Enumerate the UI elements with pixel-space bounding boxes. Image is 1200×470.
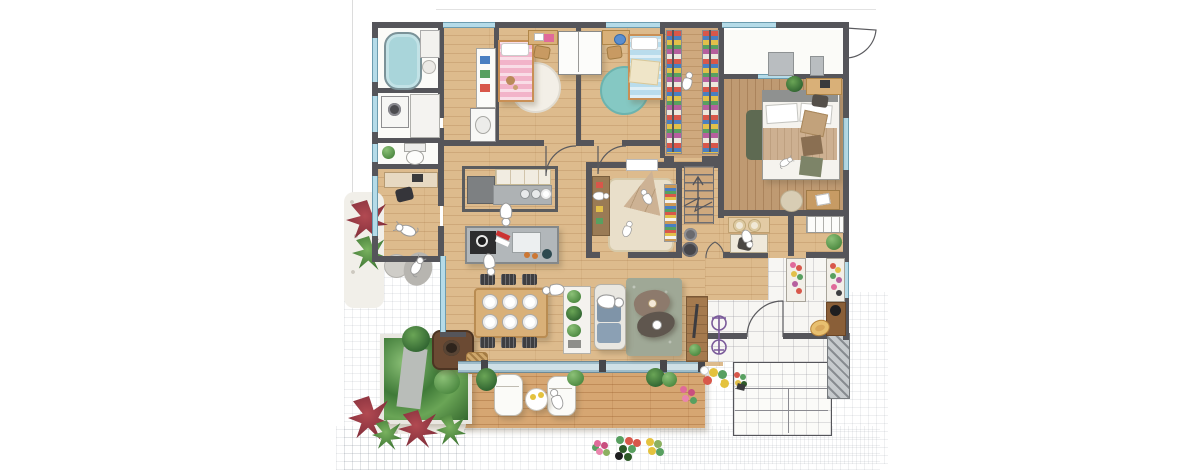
- dining-chair-3: [522, 274, 537, 285]
- deck-table: [525, 388, 548, 411]
- shoe-bench-1-flowers: [790, 262, 796, 268]
- playroom-counter-window: [626, 159, 658, 171]
- door-arc-balcony: [846, 28, 876, 58]
- washbasin-bowl: [475, 116, 491, 134]
- ottoman-2: [682, 242, 698, 257]
- master-desk-laptop: [820, 80, 830, 88]
- master-cushion-brown: [801, 135, 823, 157]
- master-pillow-1: [765, 103, 798, 124]
- kitchen-cabinets: [495, 169, 551, 185]
- window-dining-west: [440, 256, 446, 334]
- kids1-pillow: [501, 43, 529, 56]
- window-east-master: [843, 118, 849, 170]
- staircase: [684, 166, 714, 224]
- kids1-teddy: [506, 76, 515, 85]
- toilet-plant: [382, 146, 395, 159]
- nook-chair: [737, 237, 753, 252]
- fire-pit-bowl: [443, 340, 460, 356]
- porch-slab: [827, 333, 850, 399]
- deck-plant-2: [567, 370, 584, 386]
- wall-toilet-study: [376, 164, 440, 169]
- nook-basket-1: [733, 219, 746, 232]
- bath-stool: [422, 60, 436, 74]
- window-west-toilet: [372, 144, 378, 162]
- master-desk-chair: [811, 94, 829, 108]
- wall-kids-south-c: [622, 140, 664, 146]
- master-round-rug: [780, 190, 803, 212]
- porch-pillar-1: [768, 52, 794, 76]
- island-pan: [476, 235, 488, 247]
- dining-chair-6: [522, 337, 537, 348]
- kids2-pillow: [631, 37, 658, 50]
- sash-post-2: [599, 360, 606, 372]
- entry-plant-small: [689, 344, 701, 356]
- kids2-blanket: [629, 59, 660, 86]
- window-west-laundry: [372, 96, 378, 132]
- bean-table-1-cup: [648, 299, 657, 308]
- playroom-toys: [596, 182, 603, 188]
- study-laptop: [412, 174, 423, 182]
- tv-board-plant-3: [567, 324, 581, 337]
- tv-board-plant-2: [566, 306, 582, 321]
- nook-basket-2: [748, 219, 761, 232]
- deck-drinks: [530, 394, 536, 400]
- entry-black-bowl: [830, 305, 841, 316]
- flower-pot-3: [646, 438, 654, 446]
- nook-shelf: [806, 216, 844, 233]
- study-desk: [384, 172, 438, 188]
- lounger-1: [494, 374, 523, 416]
- sofa-cushion-1: [597, 300, 621, 322]
- bathtub: [384, 32, 422, 90]
- master-cushion-green: [799, 156, 823, 178]
- tv-board-plant-1: [567, 290, 581, 303]
- lounger-2-fold: [549, 388, 572, 389]
- wall-entry-south-a: [703, 333, 747, 339]
- ottoman-1: [684, 228, 697, 241]
- kitchen-sink-1: [520, 189, 530, 199]
- step-line-3: [788, 388, 789, 433]
- flower-pot-1: [594, 440, 601, 447]
- sketch-guide-line-h: [436, 9, 876, 10]
- sofa-cushion-2: [597, 323, 621, 343]
- shoe-bench-2-flowers: [830, 263, 836, 269]
- window-north-corridor: [443, 22, 495, 28]
- window-north-porch: [722, 22, 776, 28]
- dining-chair-2: [501, 274, 516, 285]
- garden-bush: [434, 370, 460, 394]
- island-oranges: [524, 252, 530, 258]
- closet-rail-left: [672, 30, 674, 152]
- laundry-counter: [410, 94, 440, 138]
- shoe-bench-1: [786, 258, 806, 302]
- floor-plan-canvas: [0, 0, 1200, 470]
- kids-wardrobe: [558, 31, 602, 75]
- closet-rack-left: [666, 30, 682, 154]
- wall-playroom-south-b: [628, 252, 682, 258]
- kitchen-fridge: [467, 176, 495, 204]
- nook-plant: [826, 234, 842, 250]
- kids2-toy: [614, 34, 626, 45]
- plate-2: [502, 294, 518, 310]
- plate-4: [482, 314, 498, 330]
- closet-rail-right: [709, 30, 711, 152]
- plate-6: [522, 314, 538, 330]
- hall-to-entrance-floor: [705, 258, 770, 302]
- garden-tree: [402, 326, 430, 352]
- steps-flowers: [734, 372, 740, 378]
- wall-nook-mid: [788, 216, 794, 256]
- porch-pillar-2: [810, 56, 824, 76]
- step-line-1: [735, 388, 828, 389]
- kids2-chair: [606, 45, 623, 60]
- bath-counter: [420, 30, 440, 58]
- window-west-study: [372, 176, 378, 236]
- entrance-steps: [733, 362, 832, 436]
- kitchen-plate: [540, 188, 552, 200]
- approach-flowers-mix: [700, 366, 709, 375]
- plate-1: [482, 294, 498, 310]
- flower-pot-2: [616, 436, 624, 444]
- master-blanket: [763, 128, 837, 160]
- master-cushion-tan: [800, 110, 828, 137]
- bean-table-2-plate: [652, 320, 662, 330]
- kids-wardrobe-door-split: [578, 32, 579, 72]
- window-west-bath: [372, 38, 378, 82]
- wall-garden-corner: [440, 332, 466, 337]
- deck-flowers-pink: [680, 386, 687, 393]
- window-north-kids2: [606, 22, 660, 28]
- dining-chair-1: [480, 274, 495, 285]
- wall-playroom-south-a: [586, 252, 600, 258]
- island-sink: [512, 232, 541, 253]
- tv-board-item: [568, 340, 581, 348]
- playroom-bookshelf: [664, 184, 677, 242]
- wall-west-wing-south: [372, 256, 443, 262]
- plate-5: [502, 314, 518, 330]
- plate-3: [522, 294, 538, 310]
- deck-plant-1: [476, 368, 497, 391]
- washing-machine-drum: [388, 103, 401, 116]
- toilet-bowl: [406, 150, 424, 165]
- dining-chair-5: [501, 337, 516, 348]
- dining-chair-4: [480, 337, 495, 348]
- deck-plant-4: [662, 372, 677, 387]
- lounger-1-fold: [496, 386, 519, 387]
- kids1-desk-items: [534, 33, 544, 41]
- island-kettle: [542, 249, 552, 259]
- corridor-shelf-items: [480, 56, 490, 64]
- step-line-2: [735, 410, 828, 411]
- wall-playroom-north-a: [586, 162, 626, 168]
- kids1-chair: [533, 45, 551, 61]
- master-plant: [786, 76, 803, 92]
